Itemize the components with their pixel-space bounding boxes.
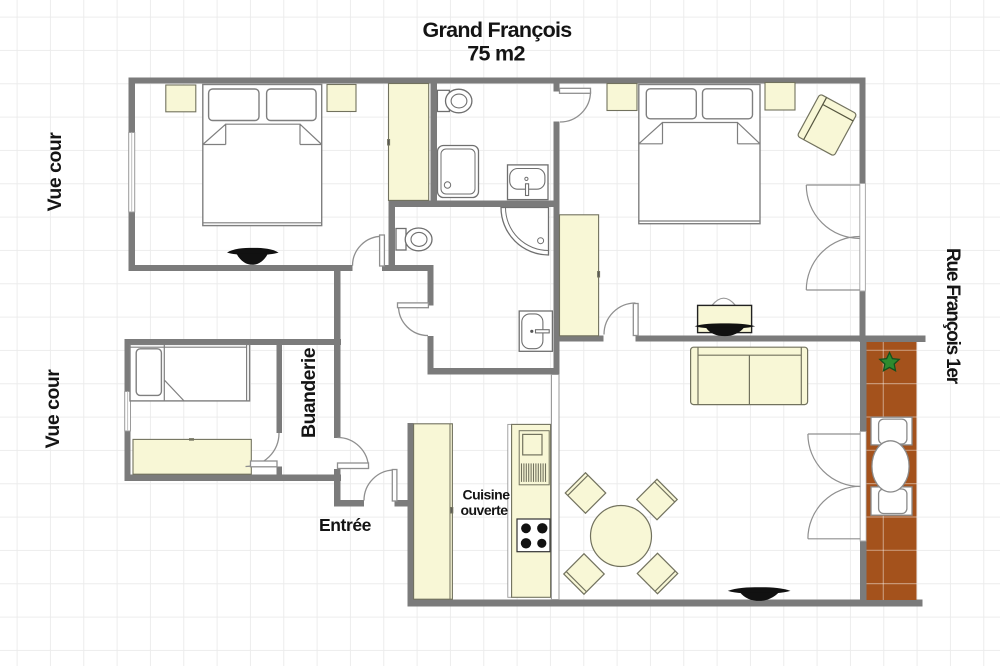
svg-text:ouverte: ouverte — [460, 502, 508, 518]
svg-text:75 m2: 75 m2 — [467, 42, 525, 66]
svg-text:Entrée: Entrée — [319, 515, 372, 535]
svg-text:Grand François: Grand François — [422, 18, 572, 42]
svg-text:Vue cour: Vue cour — [44, 132, 66, 212]
svg-text:Buanderie: Buanderie — [298, 347, 320, 438]
svg-text:Cuisine: Cuisine — [462, 487, 510, 503]
svg-text:Vue cour: Vue cour — [42, 369, 64, 449]
svg-text:Rue François 1er: Rue François 1er — [942, 248, 963, 385]
